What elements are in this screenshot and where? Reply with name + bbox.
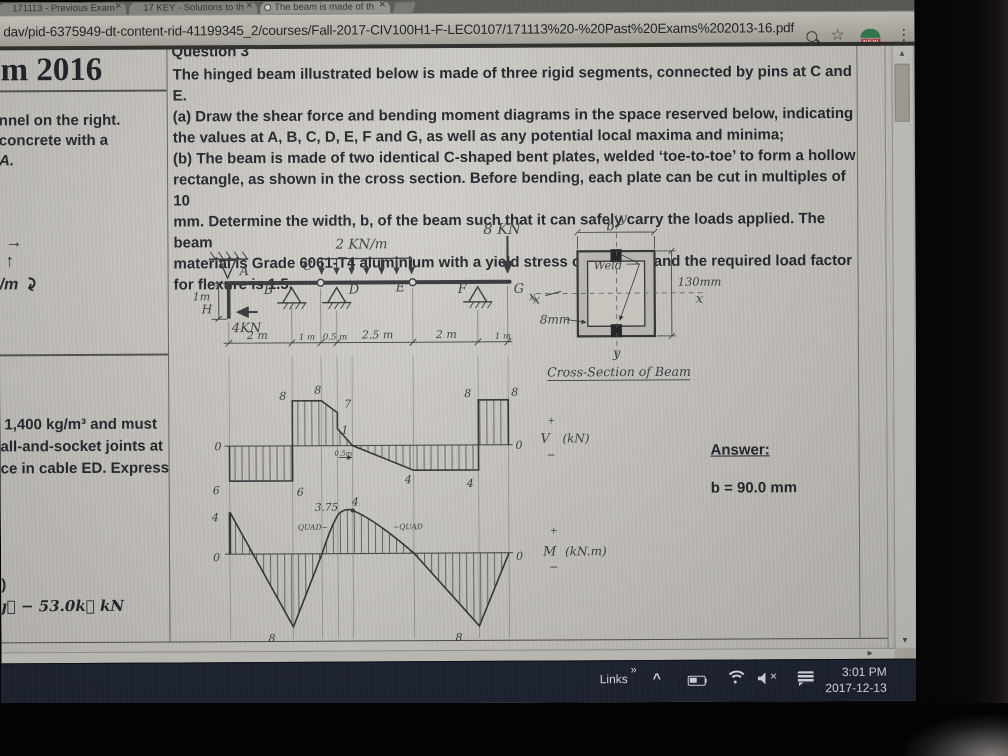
moment-diagram: 4 0 8 3.75 4 QUAD~ ~QUAD 8 0 + M − (kN.m… [211,494,608,645]
label-weld: Weld [594,258,623,272]
m-axis-minus: − [549,560,558,573]
v-label: 8 [464,387,471,400]
left-col-text: ) [1,576,6,593]
b-dimension [574,229,657,249]
v-label: 8 [279,390,286,403]
height-dimension [212,281,227,321]
scroll-up-button[interactable]: ▲ [891,46,912,61]
v-label: 0 [214,440,221,453]
photo-of-laptop-screen: 171113 - Previous Exam ✕ 17 KEY - Soluti… [0,0,1008,756]
label-dim: 2.5 m [361,328,393,341]
links-toolbar[interactable]: Links [600,672,628,686]
left-col-heading-fragment: m 2016 [0,52,102,90]
scrollbar-thumb[interactable] [894,64,909,122]
clock-date[interactable]: 2017-12-13 [817,681,887,695]
v-label: 6 [297,486,304,499]
tray-chevron-icon[interactable]: ^ [653,670,661,686]
shear-diagram: 0 6 6 8 8 7 1 0.5m 4 4 8 8 0 + V − (kN) [212,382,590,499]
m-axis-label: M [542,544,557,559]
left-col-text: nnel on the right. [0,112,120,130]
hand-drawn-figure: A B C D E F G H 4KN 2 KN/m 8 KN 1m x 2 m… [169,208,886,648]
left-col-text: A. [0,152,14,169]
v-axis-minus: − [547,448,556,461]
v-label: 8 [511,386,518,399]
label-y-bottom: y [612,346,621,361]
v-label: 0 [515,439,522,452]
m-label: 8 [455,631,462,644]
v-label: 1 [341,424,348,437]
tab-previous-exams[interactable]: 171113 - Previous Exam ✕ [0,3,126,16]
wall-hatch [210,252,247,259]
close-icon[interactable]: ✕ [246,2,254,11]
v-axis-unit: (kN) [562,431,590,445]
left-col-text: 1,400 kg/m³ and must [4,416,157,434]
m-label: 4 [211,511,219,524]
v-axis-label: V [540,432,551,447]
links-overflow-icon[interactable]: » [631,664,637,676]
left-col-arrow-up: ↑ [5,251,14,271]
pin-C [317,279,324,286]
label-y-top: y [618,211,627,226]
label-dim: 2 m [435,328,457,341]
m-label: 0 [516,550,523,563]
m-axis-unit: (kN.m) [565,544,607,558]
left-col-arrow-right: → [5,232,22,252]
battery-icon[interactable] [688,676,706,686]
v-label: 6 [213,484,220,497]
label-dim: 1 m [299,333,315,343]
favicon [264,4,271,11]
distributed-load-arrows [322,258,412,273]
label-b: b [606,219,614,234]
clock-time[interactable]: 3:01 PM [817,665,887,679]
m-label: 4 [351,496,359,509]
scroll-down-button[interactable]: ▼ [894,633,915,648]
left-col-text: ce in cable ED. Express [1,460,170,478]
laptop-screen: 171113 - Previous Exam ✕ 17 KEY - Soluti… [0,0,918,705]
extension-icon[interactable] [860,29,880,38]
label-height-dim: 1m [193,290,211,303]
m-label: 8 [268,632,275,645]
label-node: F [457,282,468,297]
caption-underline [547,380,690,381]
x-axis-dashed [536,293,704,294]
question-line: The hinged beam illustrated below is mad… [172,61,864,107]
new-tab-button[interactable] [392,2,416,13]
m-quad-note: ~QUAD [393,522,423,531]
left-col-per-m: /m [0,276,18,294]
label-node: G [514,282,524,297]
label-8mm: 8mm [540,312,570,326]
v-label: 7 [344,398,351,411]
label-130mm: 130mm [678,275,722,289]
m-quad-note: QUAD~ [298,523,328,532]
left-col-text: all-and-socket joints at [0,438,163,456]
label-dim: 2 m [246,329,268,342]
support-F [464,287,492,302]
right-bezel [916,0,1008,703]
v-label: 4 [404,473,412,486]
m-label: 0 [213,551,220,564]
address-bar: dav/pid-6375949-dt-content-rid-41199345_… [0,11,914,47]
question-line: rectangle, as shown in the cross section… [173,166,865,212]
m-axis-plus: + [550,526,558,536]
height-dimension [656,248,675,339]
v-label: 4 [466,477,474,490]
label-node: B [263,283,274,298]
label-point-load: 8 KN [483,222,522,238]
close-icon[interactable]: ✕ [379,1,387,10]
vertical-scrollbar[interactable] [891,46,915,648]
tab-solutions[interactable]: 17 KEY - Solutions to th ✕ [129,2,257,15]
notification-icon[interactable] [798,671,814,683]
windows-taskbar: ⊞ P W S 人 [2,659,918,706]
support-D [323,288,351,303]
label-distributed-load: 2 KN/m [334,236,387,252]
max-point-dot [351,509,355,513]
v-label: 8 [314,384,321,397]
left-col-vector-fragment: ȷ⃗ − 53.0k⃗ kN [1,597,124,616]
label-node: D [348,283,360,298]
label-node: H [201,302,213,316]
v-axis-plus: + [547,416,555,426]
wifi-icon[interactable] [726,670,746,686]
m-label: 3.75 [315,502,339,514]
weld-bottom [611,324,622,337]
bezel-reflection [905,716,1008,756]
label-node: A [239,264,249,279]
support-B [278,288,306,303]
label-x-right: x [696,292,704,307]
cross-section-caption: Cross-Section of Beam [547,364,691,380]
bottom-bezel: acer [0,703,1008,756]
speaker-muted-icon[interactable] [758,672,769,684]
left-col-text: concrete with a [0,132,108,150]
cross-section: y y b 130mm x x Weld 8mm Cross-Section o… [528,211,722,381]
label-dim: 1 m [495,332,511,342]
tab-active-beam[interactable]: The beam is made of th ✕ [260,1,390,14]
tab-title: The beam is made of th [274,1,374,13]
label-dim: 0.5 m [323,333,347,343]
label-node: E [395,280,406,295]
v-dim-label: 0.5m [335,450,353,458]
tab-title: 17 KEY - Solutions to th [143,2,244,14]
close-icon[interactable]: ✕ [115,3,123,12]
label-node: C [303,259,313,274]
pin-E [409,279,416,286]
label-x-left: x [529,290,537,305]
zoom-icon[interactable] [806,31,817,42]
tab-title: 171113 - Previous Exam [12,3,115,15]
scroll-right-button[interactable]: ▸ [868,648,873,659]
mute-x-icon[interactable]: ✕ [770,671,778,682]
url-field[interactable]: dav/pid-6375949-dt-content-rid-41199345_… [3,20,794,39]
